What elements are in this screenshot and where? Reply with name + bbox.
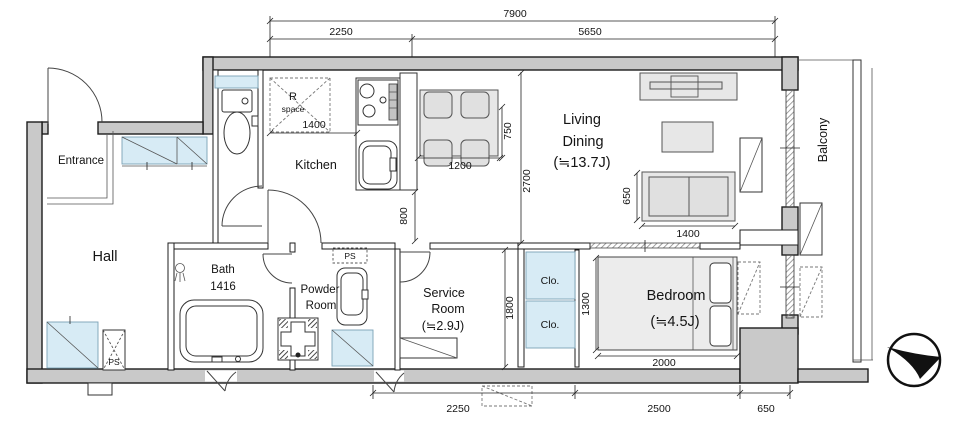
window-bedroom-balcony (786, 255, 794, 318)
shoe-cabinet (122, 137, 207, 170)
stove (358, 80, 398, 125)
wall-left (27, 122, 42, 383)
ac-unit-bedroom (738, 262, 760, 314)
dim-sofa-d: 650 (621, 187, 633, 205)
wall-top (203, 57, 798, 70)
service-desk (400, 338, 457, 358)
north-arrow (887, 334, 941, 386)
wc-shelf (215, 76, 258, 88)
dim-pass: 800 (398, 207, 410, 225)
corridor-door (268, 190, 321, 243)
label-living-size: (≒13.7J) (553, 155, 610, 171)
label-living-1: Living (563, 112, 601, 128)
floor-plan-svg: 7900 2250 5650 2250 2500 650 1400 1200 7… (0, 0, 960, 425)
label-ps-left: PS (108, 357, 120, 367)
label-rspace-1: R (289, 91, 297, 103)
label-service-size: (≒2.9J) (422, 319, 464, 333)
meter-box (88, 383, 112, 395)
label-closet-2: Clo. (541, 319, 560, 331)
wall-top-left-connector (203, 57, 213, 134)
ac-unit-balcony-2 (800, 267, 822, 317)
label-bedroom: Bedroom (647, 288, 706, 304)
kitchen-sink (359, 141, 397, 189)
label-ps-top: PS (344, 251, 356, 261)
label-service-2: Room (431, 302, 464, 316)
fixtures (47, 73, 417, 370)
window-ld-balcony (786, 90, 794, 207)
dim-bed-w: 2000 (652, 357, 676, 369)
label-hall: Hall (93, 249, 118, 265)
dim-table-w: 1200 (448, 160, 472, 172)
wall-wc-left (213, 70, 218, 243)
wall-corridor-5 (700, 243, 740, 249)
dim-bottom-mid: 2500 (647, 403, 671, 415)
label-balcony: Balcony (816, 117, 830, 162)
bath-door (263, 254, 292, 283)
wc-door (222, 186, 262, 226)
wall-se-chunk (740, 328, 798, 383)
floor-plan: 7900 2250 5650 2250 2500 650 1400 1200 7… (0, 0, 960, 425)
wall-wc-right (258, 70, 263, 188)
dim-ld-h: 2700 (521, 169, 533, 193)
wall-corridor-3 (430, 243, 518, 249)
wall-closet-bedroom (575, 250, 579, 367)
dim-bottom-right: 650 (757, 403, 775, 415)
wall-entrance-top (98, 122, 203, 134)
label-living-2: Dining (562, 134, 603, 150)
washbasin (337, 268, 368, 325)
hall-closet (47, 316, 98, 368)
label-bath-1: Bath (211, 264, 235, 276)
dim-sofa-w: 1400 (676, 228, 700, 240)
dim-top-left: 2250 (329, 26, 353, 38)
dim-top-right: 5650 (578, 26, 602, 38)
wall-right-top-corner (782, 57, 798, 90)
sofa (642, 172, 735, 221)
bathtub (180, 300, 263, 362)
coffee-table (662, 122, 713, 152)
service-door (400, 252, 430, 282)
wall-bath-powder-a (290, 243, 295, 252)
label-kitchen: Kitchen (295, 158, 337, 172)
wall-corridor-2 (322, 243, 395, 249)
label-bath-2: 1416 (210, 281, 236, 293)
label-rspace-2: space (282, 104, 305, 114)
dim-top-total: 7900 (503, 8, 527, 20)
wall-powder-service (395, 249, 400, 370)
label-closet-1: Clo. (541, 275, 560, 287)
dim-service-h: 1800 (504, 296, 516, 320)
windows (780, 90, 800, 318)
label-powder-2: Room (306, 300, 337, 312)
entrance-door (48, 68, 102, 124)
label-powder-1: Powder (301, 284, 340, 296)
ld-chair (740, 138, 762, 192)
dim-kitchen: 1400 (302, 119, 326, 131)
wall-ld-bedroom-stub (740, 230, 798, 245)
wall-corridor-4 (518, 243, 590, 249)
wall-service-closet (518, 249, 524, 367)
bottom-door-gap-2 (374, 371, 404, 382)
washing-machine-pan (278, 318, 318, 360)
dining-set (420, 90, 498, 166)
tv-board (640, 73, 737, 100)
wall-entrance-stub (42, 122, 48, 134)
label-entrance: Entrance (58, 155, 104, 167)
toilet (222, 90, 258, 154)
wall-hall-bath (168, 243, 174, 370)
balcony-rail (853, 60, 861, 362)
dim-table-d: 750 (502, 122, 514, 140)
dim-bed-d: 1300 (580, 292, 592, 316)
wall-corridor-1 (168, 243, 268, 249)
balcony-slab (798, 369, 868, 382)
label-service-1: Service (423, 286, 465, 300)
ac-unit-south (482, 386, 532, 406)
dim-bottom-left: 2250 (446, 403, 470, 415)
label-bedroom-size: (≒4.5J) (650, 314, 699, 330)
entrance-step (47, 131, 113, 204)
ac-unit-balcony-1 (800, 203, 822, 255)
linen-cabinet (332, 330, 373, 366)
shower-head (175, 264, 185, 283)
